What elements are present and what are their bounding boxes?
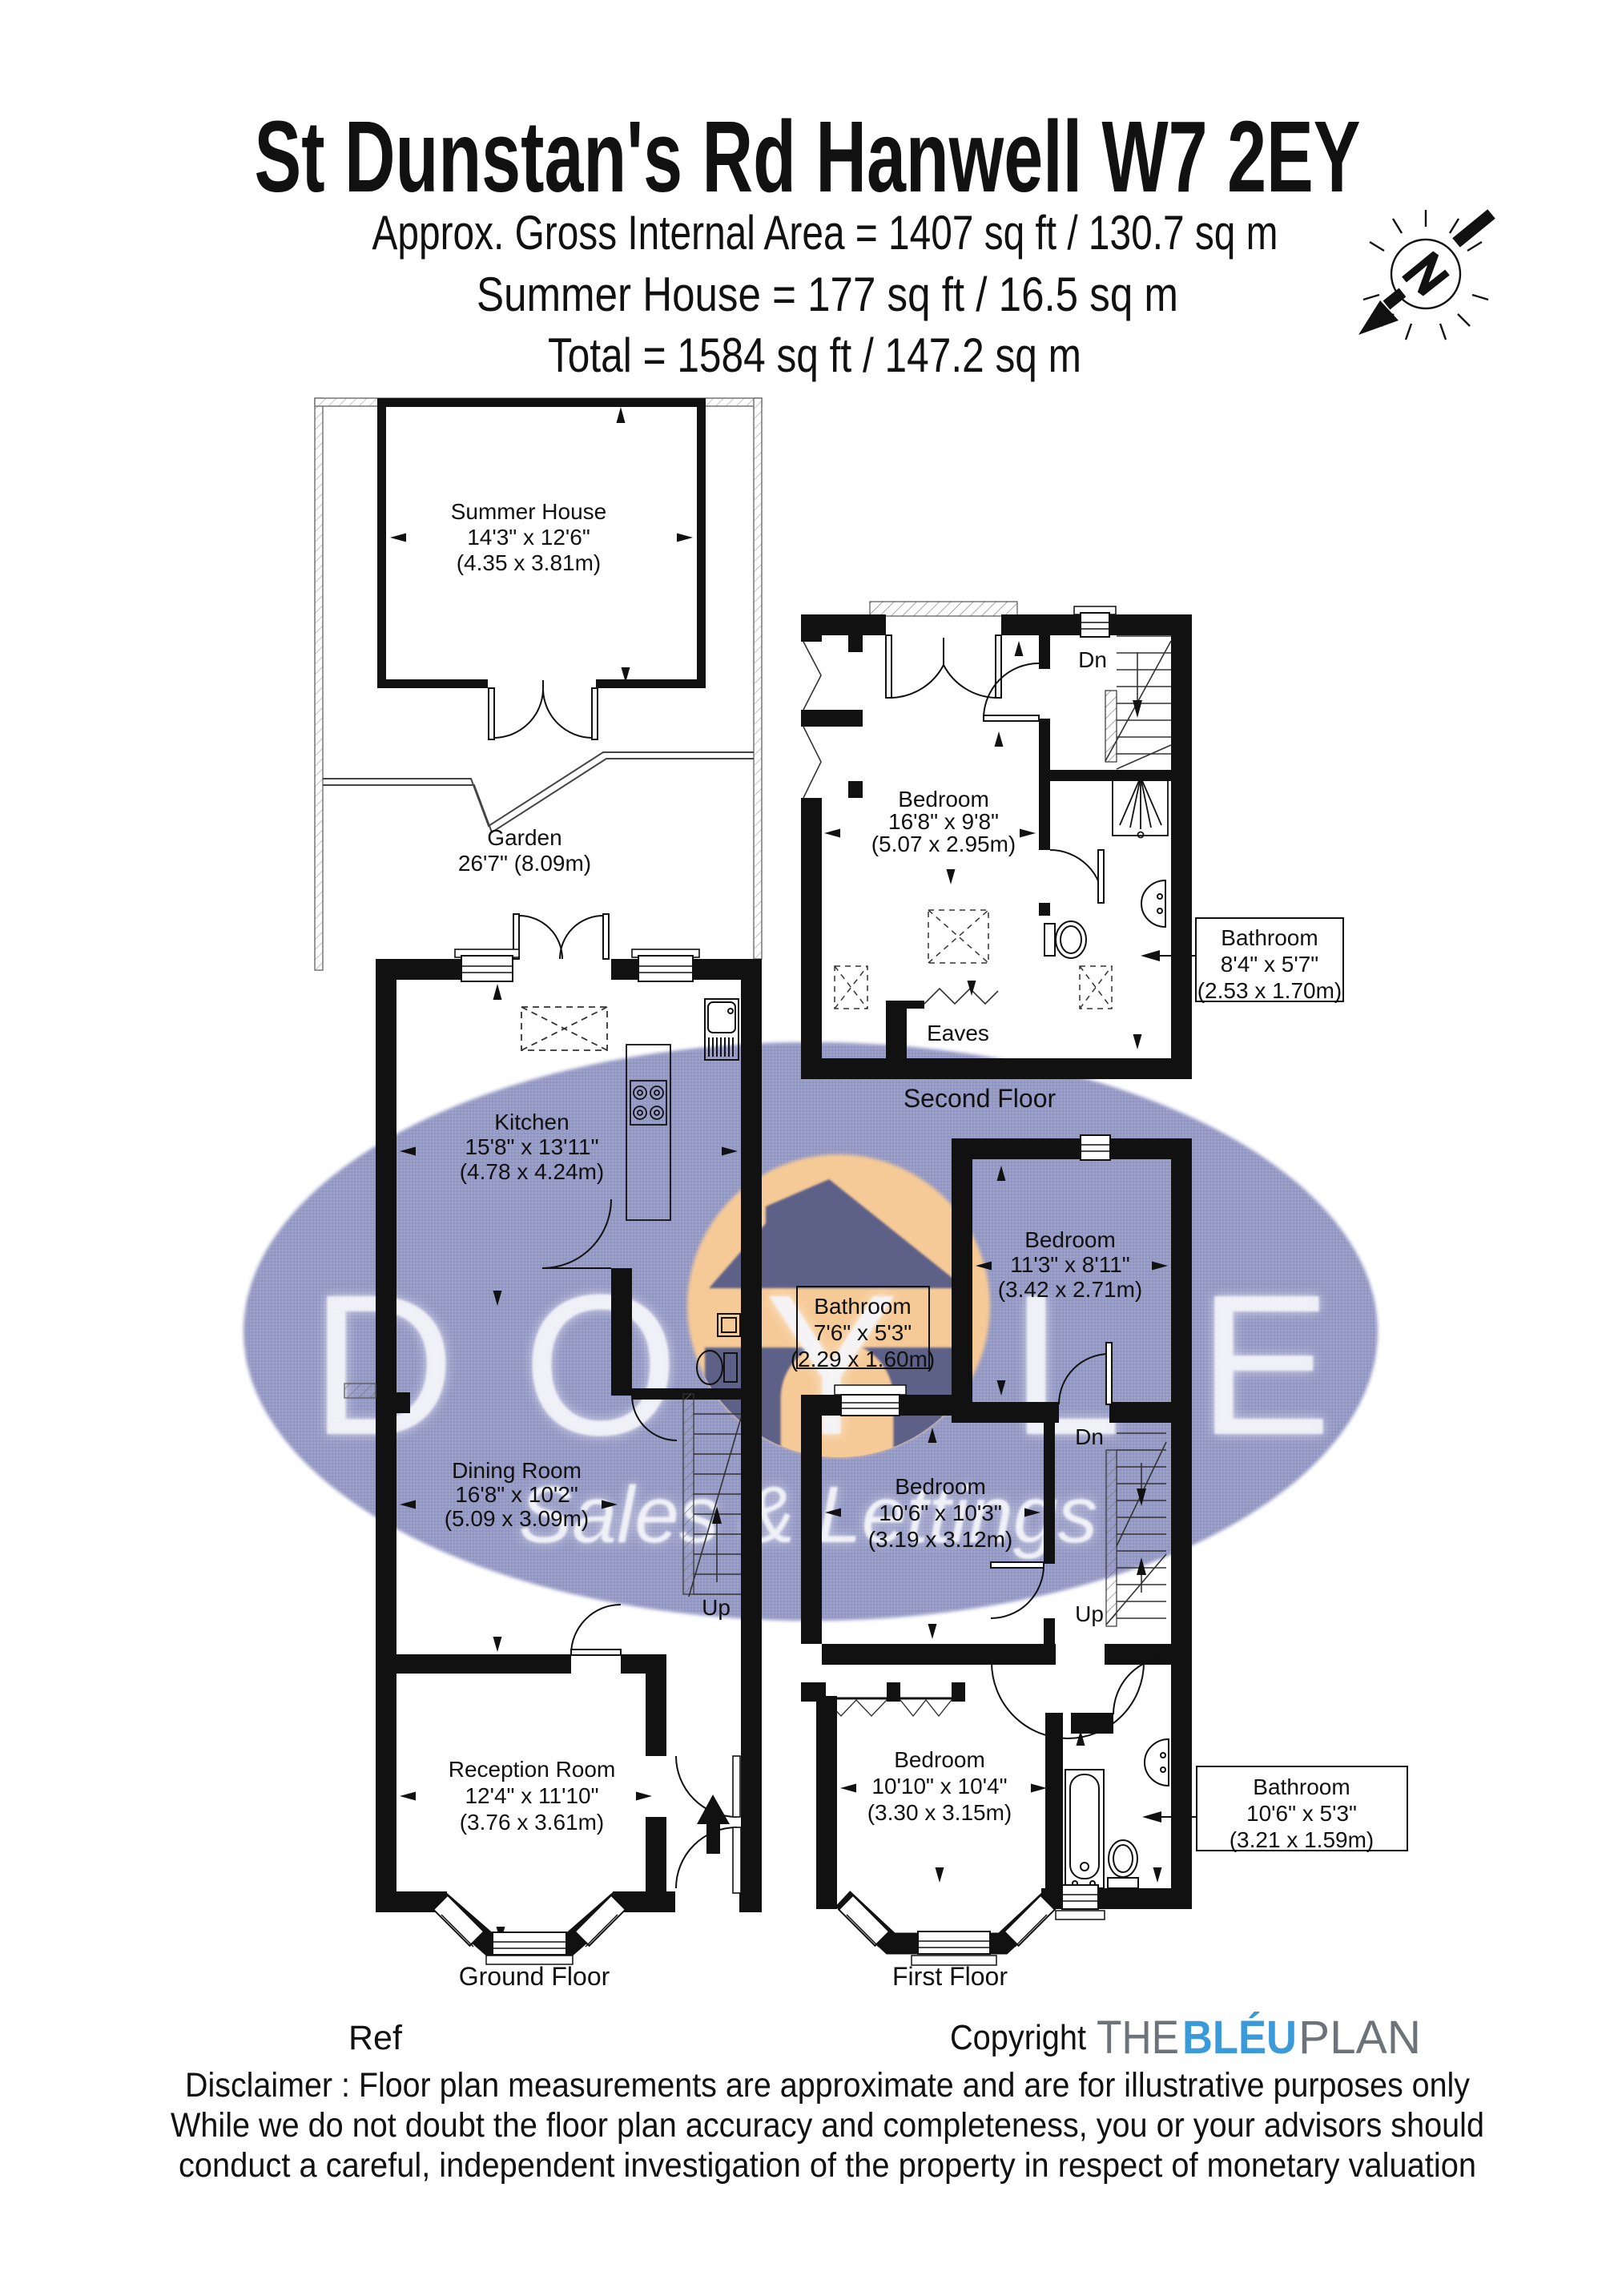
svg-text:(4.35 x 3.81m): (4.35 x 3.81m) xyxy=(457,550,602,575)
svg-text:Copyright: Copyright xyxy=(950,2018,1086,2057)
svg-text:Eaves: Eaves xyxy=(927,1021,989,1045)
svg-text:(2.53 x 1.70m): (2.53 x 1.70m) xyxy=(1197,978,1342,1003)
svg-text:Dining Room: Dining Room xyxy=(452,1458,582,1483)
svg-text:(5.09 x 3.09m): (5.09 x 3.09m) xyxy=(445,1506,590,1531)
svg-text:Reception Room: Reception Room xyxy=(449,1757,616,1782)
svg-text:Up: Up xyxy=(702,1595,731,1620)
svg-text:Ground Floor: Ground Floor xyxy=(459,1962,610,1991)
svg-text:Kitchen: Kitchen xyxy=(494,1110,569,1134)
svg-text:Bathroom: Bathroom xyxy=(1253,1774,1350,1799)
svg-text:O: O xyxy=(523,1253,678,1476)
svg-text:(3.21 x 1.59m): (3.21 x 1.59m) xyxy=(1230,1827,1374,1852)
svg-text:conduct a careful, independent: conduct a careful, independent investiga… xyxy=(179,2146,1476,2185)
svg-text:(5.07 x 2.95m): (5.07 x 2.95m) xyxy=(871,832,1016,856)
svg-text:Summer House: Summer House xyxy=(451,499,607,524)
svg-text:(3.76 x 3.61m): (3.76 x 3.61m) xyxy=(460,1810,605,1835)
svg-text:Bathroom: Bathroom xyxy=(814,1294,911,1319)
svg-text:8'4" x 5'7": 8'4" x 5'7" xyxy=(1221,952,1318,977)
svg-text:Disclaimer : Floor plan measur: Disclaimer : Floor plan measurements are… xyxy=(185,2066,1470,2105)
svg-text:7'6" x 5'3": 7'6" x 5'3" xyxy=(814,1320,912,1345)
svg-text:15'8" x 13'11": 15'8" x 13'11" xyxy=(465,1134,598,1159)
svg-text:12'4" x 11'10": 12'4" x 11'10" xyxy=(465,1783,598,1808)
svg-text:Summer House = 177 sq ft / 16.: Summer House = 177 sq ft / 16.5 sq m xyxy=(477,268,1178,321)
svg-text:(3.19 x 3.12m): (3.19 x 3.12m) xyxy=(868,1527,1013,1552)
svg-text:14'3" x 12'6": 14'3" x 12'6" xyxy=(467,525,590,550)
svg-text:Dn: Dn xyxy=(1078,647,1107,672)
svg-text:Dn: Dn xyxy=(1075,1424,1104,1449)
svg-text:Up: Up xyxy=(1075,1601,1104,1626)
svg-text:PLAN: PLAN xyxy=(1298,2012,1421,2064)
svg-text:10'6" x 5'3": 10'6" x 5'3" xyxy=(1246,1801,1357,1826)
svg-text:First Floor: First Floor xyxy=(892,1962,1008,1991)
svg-text:Approx. Gross Internal Area =: Approx. Gross Internal Area = 1407 sq ft… xyxy=(372,206,1278,260)
svg-text:Ref: Ref xyxy=(348,2019,403,2057)
svg-text:(4.78 x 4.24m): (4.78 x 4.24m) xyxy=(460,1159,605,1184)
svg-text:Second Floor: Second Floor xyxy=(904,1084,1057,1113)
svg-text:11'3" x 8'11": 11'3" x 8'11" xyxy=(1010,1252,1129,1277)
svg-text:16'8" x 10'2": 16'8" x 10'2" xyxy=(455,1482,578,1507)
svg-text:While we do not doubt the floo: While we do not doubt the floor plan acc… xyxy=(171,2106,1484,2145)
svg-text:Bedroom: Bedroom xyxy=(894,1747,985,1772)
svg-text:THE: THE xyxy=(1097,2012,1179,2064)
svg-text:E: E xyxy=(1198,1253,1332,1476)
svg-text:Bedroom: Bedroom xyxy=(898,787,989,812)
svg-text:Bedroom: Bedroom xyxy=(1024,1227,1116,1252)
svg-text:16'8" x 9'8": 16'8" x 9'8" xyxy=(888,809,999,834)
svg-text:Bedroom: Bedroom xyxy=(895,1474,986,1499)
svg-text:BLÉU: BLÉU xyxy=(1182,2012,1297,2064)
svg-text:(3.42 x 2.71m): (3.42 x 2.71m) xyxy=(998,1277,1143,1302)
svg-text:St Dunstan's Rd Hanwell W7 2EY: St Dunstan's Rd Hanwell W7 2EY xyxy=(255,100,1361,213)
svg-text:Bathroom: Bathroom xyxy=(1221,925,1318,950)
svg-text:Total = 1584 sq ft / 147.2 sq: Total = 1584 sq ft / 147.2 sq m xyxy=(548,328,1081,382)
svg-text:Garden: Garden xyxy=(487,825,561,850)
svg-text:26'7" (8.09m): 26'7" (8.09m) xyxy=(458,851,591,876)
svg-text:10'10" x 10'4": 10'10" x 10'4" xyxy=(871,1774,1007,1799)
svg-text:(3.30 x 3.15m): (3.30 x 3.15m) xyxy=(867,1800,1012,1825)
svg-text:(2.29 x 1.60m): (2.29 x 1.60m) xyxy=(791,1347,936,1372)
svg-text:10'6" x 10'3": 10'6" x 10'3" xyxy=(879,1500,1002,1525)
